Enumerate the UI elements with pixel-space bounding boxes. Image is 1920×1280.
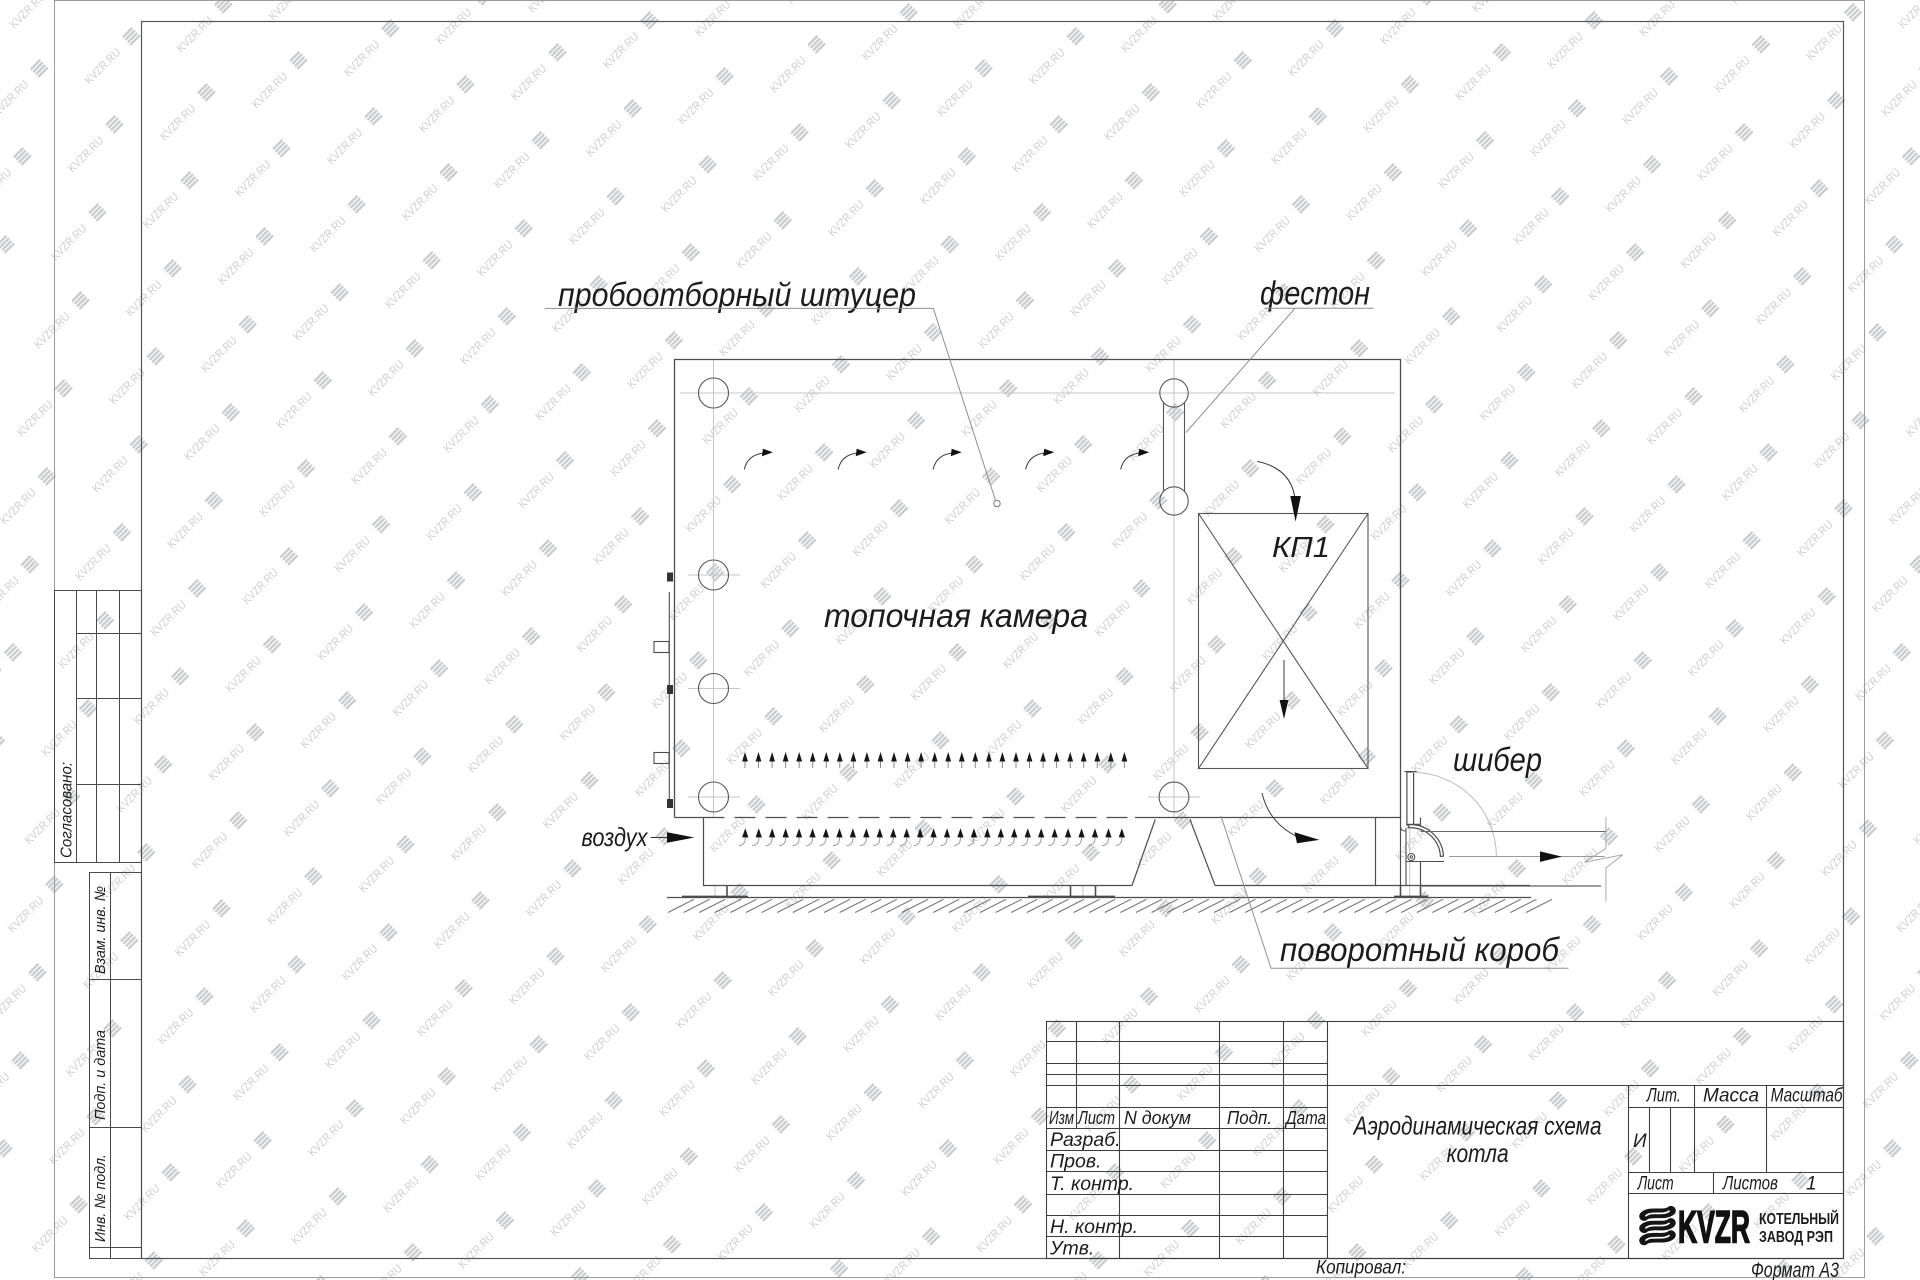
svg-text:Разраб.: Разраб. (1050, 1129, 1121, 1151)
svg-text:Листов: Листов (1721, 1174, 1778, 1195)
svg-text:Изм: Изм (1049, 1108, 1074, 1128)
svg-text:ЗАВОД РЭП: ЗАВОД РЭП (1759, 1229, 1833, 1246)
svg-text:Подп.: Подп. (1227, 1108, 1272, 1128)
svg-text:фестон: фестон (1260, 275, 1370, 312)
svg-text:KVZR: KVZR (1678, 1202, 1750, 1253)
svg-text:Лист: Лист (1077, 1108, 1115, 1128)
svg-text:Лист: Лист (1636, 1174, 1673, 1195)
svg-text:шибер: шибер (1453, 741, 1542, 778)
svg-text:Взам. инв. №: Взам. инв. № (92, 886, 109, 974)
svg-text:Согласовано:: Согласовано: (59, 762, 76, 858)
svg-text:Пров.: Пров. (1050, 1151, 1101, 1173)
svg-text:Т. контр.: Т. контр. (1050, 1173, 1134, 1195)
svg-text:поворотный короб: поворотный короб (1280, 931, 1560, 968)
svg-text:пробоотборный штуцер: пробоотборный штуцер (558, 276, 916, 313)
svg-text:N докум: N докум (1124, 1108, 1191, 1128)
svg-text:Инв. № подл.: Инв. № подл. (92, 1154, 109, 1242)
svg-text:топочная камера: топочная камера (824, 597, 1088, 634)
svg-text:Лит.: Лит. (1645, 1086, 1681, 1107)
svg-text:Н. контр.: Н. контр. (1050, 1216, 1138, 1238)
svg-text:воздух: воздух (582, 822, 649, 852)
svg-text:1: 1 (1806, 1174, 1817, 1195)
svg-text:Подп. и дата: Подп. и дата (92, 1030, 109, 1120)
svg-text:Аэродинамическая схема: Аэродинамическая схема (1352, 1111, 1602, 1141)
svg-text:КП1: КП1 (1272, 532, 1330, 564)
svg-text:КОТЕЛЬНЫЙ: КОТЕЛЬНЫЙ (1759, 1210, 1839, 1228)
svg-text:Дата: Дата (1284, 1108, 1326, 1128)
svg-text:И: И (1633, 1131, 1647, 1152)
svg-text:Формат А3: Формат А3 (1751, 1258, 1839, 1280)
svg-text:Масштаб: Масштаб (1771, 1086, 1844, 1107)
svg-text:котла: котла (1447, 1138, 1509, 1168)
svg-text:Утв.: Утв. (1049, 1238, 1094, 1260)
svg-text:Масса: Масса (1703, 1086, 1759, 1107)
svg-text:Копировал:: Копировал: (1316, 1257, 1406, 1279)
